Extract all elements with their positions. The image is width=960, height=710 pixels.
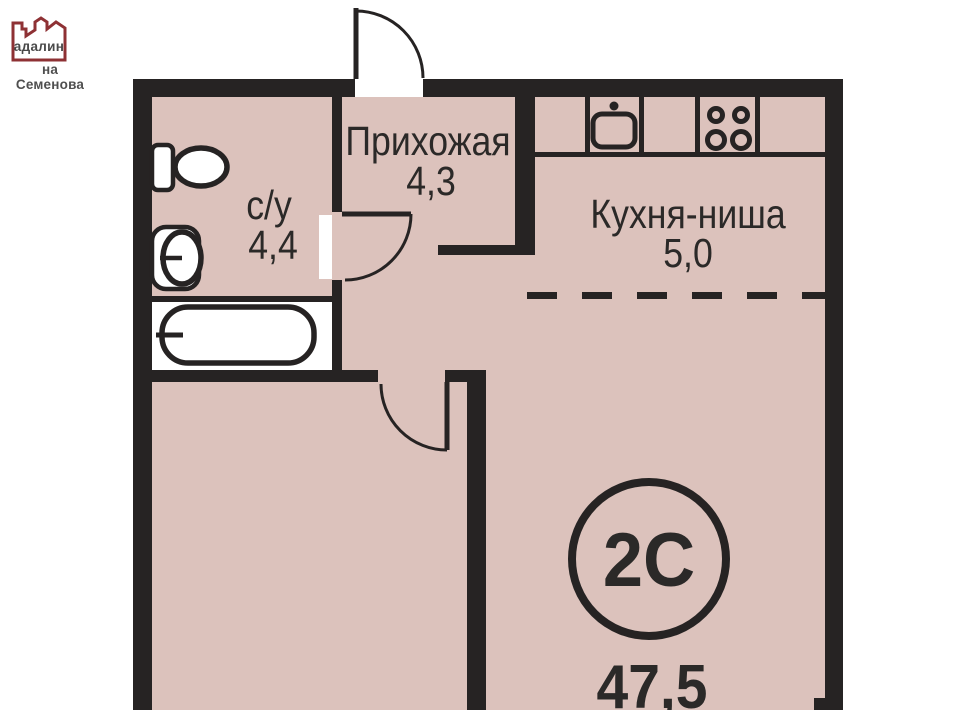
wall-bathroom-upper [332,97,342,212]
wall-bathroom-lower [332,280,342,370]
bathroom-area-label: 4,4 [248,223,298,269]
floorplan-canvas: адалин на Семенова [0,0,960,710]
floorplan: 2С 47,5 Прихожая 4,3 с/у 4,4 Кухня-ниша … [0,0,960,710]
bathtub-icon [156,307,314,363]
wall-center [467,370,486,710]
wall-right-stub [814,698,825,710]
bathroom-label: с/у [246,183,292,229]
wall-kitchen-horizontal [438,245,535,255]
kitchen-area-label: 5,0 [663,231,713,277]
entry-door [356,8,423,79]
toilet-icon [152,145,227,190]
wall-top-right [423,79,843,97]
wall-left [133,79,152,710]
hallway-area-label: 4,3 [406,159,456,205]
hallway-label: Прихожая [345,119,510,165]
kitchen-faucet-icon [610,102,619,111]
washbasin-icon [152,227,201,289]
wall-top-left [133,79,355,97]
wall-bedroom-top [133,370,378,382]
wall-kitchen-vertical [515,97,535,255]
wall-right [825,79,843,710]
unit-type-label: 2С [603,517,695,602]
total-area-label: 47,5 [596,652,707,710]
